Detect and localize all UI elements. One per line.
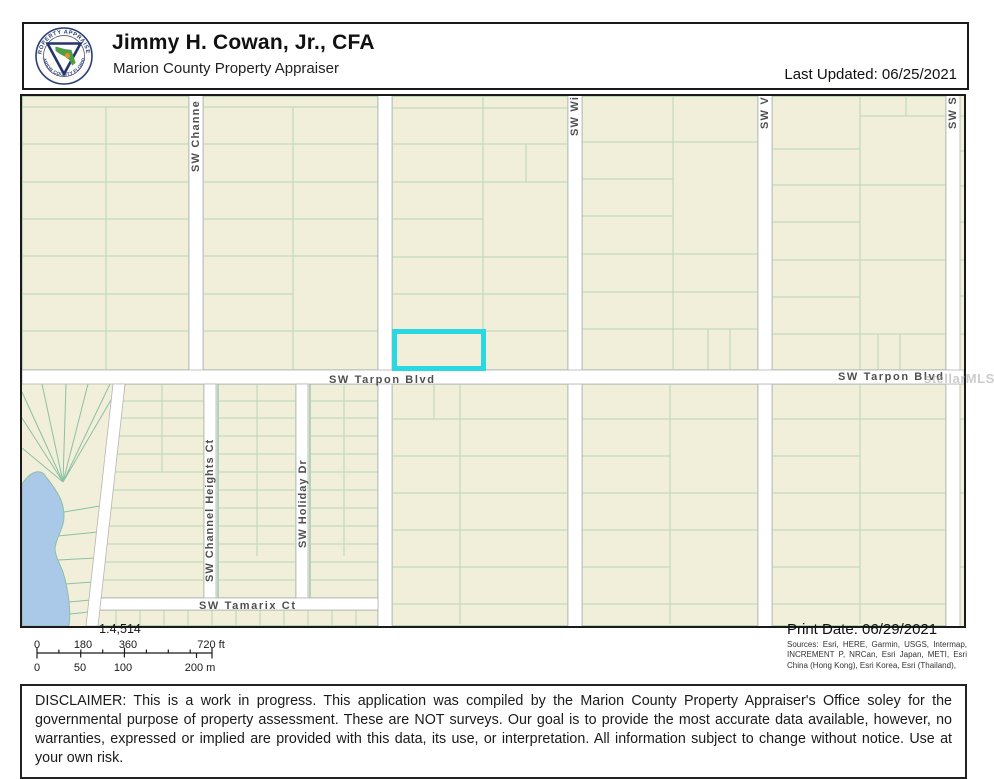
scale-m-50: 50 — [74, 662, 86, 674]
road-sw-v-south — [758, 384, 772, 626]
scale-ft-720: 720 ft — [197, 639, 225, 651]
scale-ft-360: 360 — [119, 639, 137, 651]
page-subtitle: Marion County Property Appraiser — [113, 60, 339, 77]
road-sw-s-south — [946, 384, 960, 626]
disclaimer-text: DISCLAIMER: This is a work in progress. … — [35, 692, 952, 767]
street-label-sw-tamarix-ct: SW Tamarix Ct — [199, 600, 297, 612]
seal-florida-accent — [65, 53, 70, 58]
scale-bar: 1:4,514 0 180 360 720 ft 0 50 100 200 m — [25, 620, 261, 678]
print-date-label: Print Date: 06/29/2021 — [787, 621, 967, 638]
street-label-sw-wi: SW Wi — [569, 96, 581, 136]
parcel-map[interactable]: SW Channe SW Wi SW V SW S SW Channel Hei… — [20, 94, 966, 628]
road-sw-wi-south — [568, 384, 582, 626]
scale-m-0: 0 — [34, 662, 40, 674]
scale-ratio: 1:4,514 — [99, 622, 141, 636]
print-info: Print Date: 06/29/2021 Sources: Esri, HE… — [787, 621, 967, 671]
street-label-sw-holiday-dr: SW Holiday Dr — [297, 459, 309, 548]
map-background — [22, 96, 964, 626]
property-appraiser-seal-icon: PROPERTY APPRAISER MARION COUNTY FLORIDA — [34, 26, 94, 86]
road-vertical-2 — [378, 96, 392, 626]
page-title: Jimmy H. Cowan, Jr., CFA — [112, 31, 375, 55]
last-updated-label: Last Updated: 06/25/2021 — [784, 66, 957, 83]
street-label-sw-tarpon-blvd: SW Tarpon Blvd — [329, 374, 436, 386]
street-label-sw-channel-heights-ct: SW Channel Heights Ct — [204, 439, 216, 582]
street-label-sw-v: SW V — [759, 96, 771, 129]
scale-ft-180: 180 — [74, 639, 92, 651]
disclaimer-box: DISCLAIMER: This is a work in progress. … — [20, 684, 967, 779]
street-label-sw-channel: SW Channe — [190, 100, 202, 172]
scale-ticks — [37, 648, 212, 659]
sources-text: Sources: Esri, HERE, Garmin, USGS, Inter… — [787, 640, 967, 671]
road-sw-s — [946, 96, 960, 371]
road-sw-tarpon-blvd — [22, 370, 964, 384]
scale-m-200: 200 m — [185, 662, 216, 674]
stellar-mls-watermark: stellarMLS — [924, 371, 994, 386]
scale-m-100: 100 — [114, 662, 132, 674]
road-sw-v — [758, 96, 772, 371]
road-sw-wi — [568, 96, 582, 371]
street-label-sw-s: SW S — [947, 96, 959, 129]
header-bar: PROPERTY APPRAISER MARION COUNTY FLORIDA… — [22, 22, 969, 90]
